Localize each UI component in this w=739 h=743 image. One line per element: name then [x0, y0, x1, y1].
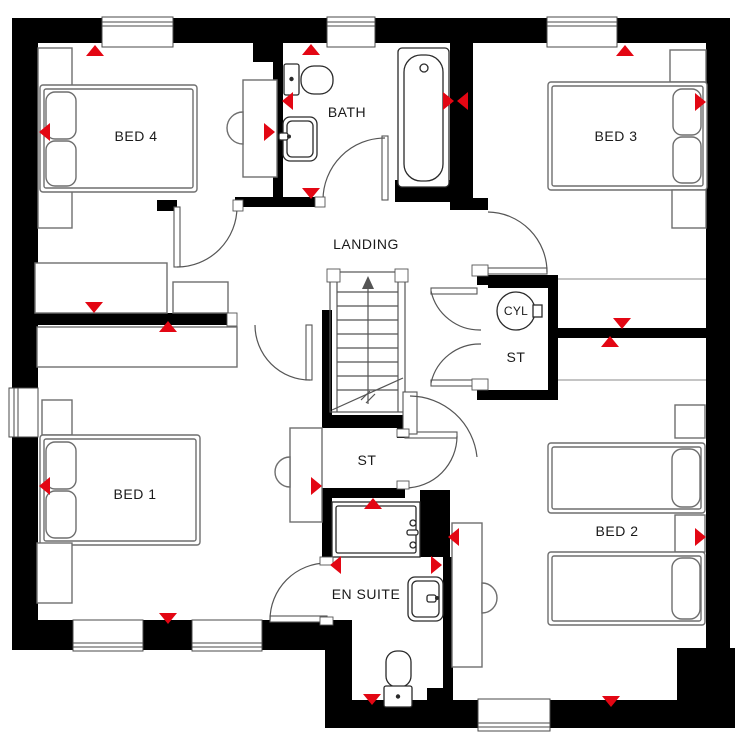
floor-plan-drawing: [0, 0, 739, 743]
window-bed1-left: [9, 388, 38, 437]
red-arrow-marker: [86, 45, 104, 56]
bed1-dressing-table: [290, 428, 322, 522]
door-bed3: [488, 212, 547, 274]
bed1-wardrobe-top: [37, 327, 237, 367]
room-label-ensuite: EN SUITE: [332, 586, 401, 602]
window-bed1-bottom-2: [192, 620, 262, 651]
bed1-stool: [275, 457, 290, 487]
bed2-single-bed-1: [548, 443, 705, 513]
red-arrow-marker: [613, 318, 631, 329]
room-label-bed4: BED 4: [115, 128, 158, 144]
bed4-chest-small: [173, 282, 228, 313]
bed1-bedside-table: [42, 400, 72, 435]
window-bed2-bottom: [478, 699, 550, 731]
room-label-cylinder: CYL: [504, 304, 528, 318]
bed2-wardrobe-handle: [482, 583, 497, 613]
bed3-wardrobe: [670, 50, 706, 82]
door-bed4: [174, 207, 237, 267]
room-label-store-understairs: ST: [358, 452, 377, 468]
staircase: [327, 269, 408, 412]
shower-tray: [332, 502, 420, 557]
ensuite-toilet: [384, 651, 412, 707]
pillow: [673, 137, 701, 183]
red-arrow-marker: [616, 45, 634, 56]
pillow: [46, 92, 76, 139]
window-bed3-top: [547, 17, 617, 47]
bed4-chest: [35, 263, 167, 313]
stairs-up-arrow: [362, 276, 374, 289]
pillow: [46, 491, 76, 538]
bath-toilet: [284, 64, 333, 95]
bed2-single-bed-2: [548, 552, 705, 625]
door-store-understairs: [405, 432, 457, 488]
red-arrow-marker: [302, 44, 320, 55]
pillow: [46, 141, 76, 186]
bed4-stool: [227, 112, 243, 144]
bed4-dressing-table: [243, 80, 277, 177]
pillow: [46, 442, 76, 489]
bed1-wardrobe-left: [37, 543, 72, 603]
room-label-bed1: BED 1: [114, 486, 157, 502]
door-bath: [323, 136, 388, 200]
door-cylinder-cupboard-top: [431, 288, 481, 330]
room-label-bed3: BED 3: [595, 128, 638, 144]
room-label-bed2: BED 2: [596, 523, 639, 539]
bath-basin: [279, 117, 317, 161]
red-arrow-marker: [431, 556, 442, 574]
room-label-store-cupboard: ST: [507, 349, 526, 365]
room-label-landing: LANDING: [333, 236, 399, 252]
ensuite-basin: [408, 577, 443, 621]
door-bed2: [403, 392, 477, 457]
window-bed4-top: [102, 17, 173, 47]
bed2-wardrobe: [452, 523, 482, 667]
bed3-cabinet: [672, 190, 706, 228]
pillow: [672, 558, 700, 619]
pillow: [672, 449, 700, 507]
bed2-cabinet-top: [675, 405, 705, 438]
bathtub: [398, 48, 449, 187]
door-ensuite: [270, 563, 327, 622]
window-bath-top: [327, 17, 375, 47]
door-bed1: [255, 325, 312, 380]
window-bed1-bottom-1: [73, 620, 143, 651]
fixtures: [279, 48, 542, 707]
room-label-bath: BATH: [328, 104, 366, 120]
floor-plan: BED 4 BATH BED 3 LANDING CYL ST BED 1 ST…: [0, 0, 739, 743]
